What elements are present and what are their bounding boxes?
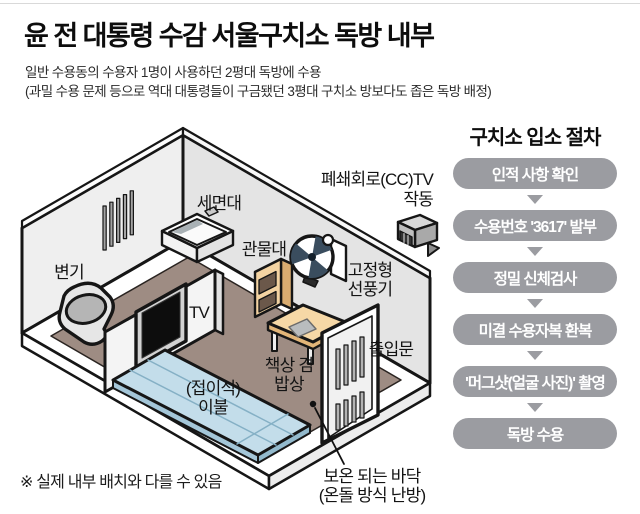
arrow-wrap (453, 241, 617, 262)
arrow-down-icon (527, 247, 543, 256)
step-pill-3: 정밀 신체검사 (453, 262, 617, 293)
desk-label: 책상 겸 밥상 (265, 356, 313, 394)
infographic-page: 윤 전 대통령 수감 서울구치소 독방 내부 일반 수용동의 수용자 1명이 사… (0, 0, 640, 514)
toilet-label: 변기 (54, 263, 84, 282)
procedure-title: 구치소 입소 절차 (453, 126, 617, 150)
step-pill-1: 인적 사항 확인 (453, 158, 617, 189)
bedding-label: (접이식) 이불 (186, 379, 240, 417)
heated-floor-label-line1: 보온 되는 바닥 (319, 467, 426, 486)
desk-label-line2: 밥상 (265, 375, 313, 394)
heated-floor-label-line2: (온돌 방식 난방) (319, 486, 426, 505)
bedding-label-line1: (접이식) (186, 379, 240, 398)
arrow-down-icon (527, 351, 543, 360)
fan-label-line2: 선풍기 (348, 280, 393, 299)
arrow-down-icon (527, 403, 543, 412)
bedding-label-line2: 이불 (186, 398, 240, 417)
cctv-label-line1: 폐쇄회로(CC)TV (321, 170, 433, 190)
step-pill-2: 수용번호 '3617' 발부 (453, 210, 617, 241)
step-pill-4: 미결 수용자복 환복 (453, 314, 617, 345)
arrow-down-icon (527, 299, 543, 308)
door-label: 출입문 (369, 340, 414, 359)
heated-floor-label: 보온 되는 바닥 (온돌 방식 난방) (319, 467, 426, 505)
sink-label: 세면대 (197, 194, 242, 213)
desk-label-line1: 책상 겸 (265, 356, 313, 375)
step-pill-6: 독방 수용 (453, 418, 617, 449)
arrow-wrap (453, 345, 617, 366)
disclaimer-note: ※ 실제 내부 배치와 다를 수 있음 (20, 468, 222, 492)
procedure-panel: 구치소 입소 절차 인적 사항 확인 수용번호 '3617' 발부 정밀 신체검… (453, 126, 617, 449)
arrow-down-icon (527, 195, 543, 204)
arrow-wrap (453, 397, 617, 418)
arrow-wrap (453, 293, 617, 314)
arrow-wrap (453, 189, 617, 210)
fan-label: 고정형 선풍기 (348, 261, 393, 299)
locker-label: 관물대 (242, 240, 287, 259)
tv-label: TV (189, 303, 209, 322)
fan-label-line1: 고정형 (348, 261, 393, 280)
cctv-camera-icon (398, 215, 439, 256)
cctv-label-line2: 작동 (321, 190, 433, 210)
cctv-label: 폐쇄회로(CC)TV 작동 (321, 170, 433, 209)
step-pill-5: '머그샷(얼굴 사진)' 촬영 (453, 366, 617, 397)
